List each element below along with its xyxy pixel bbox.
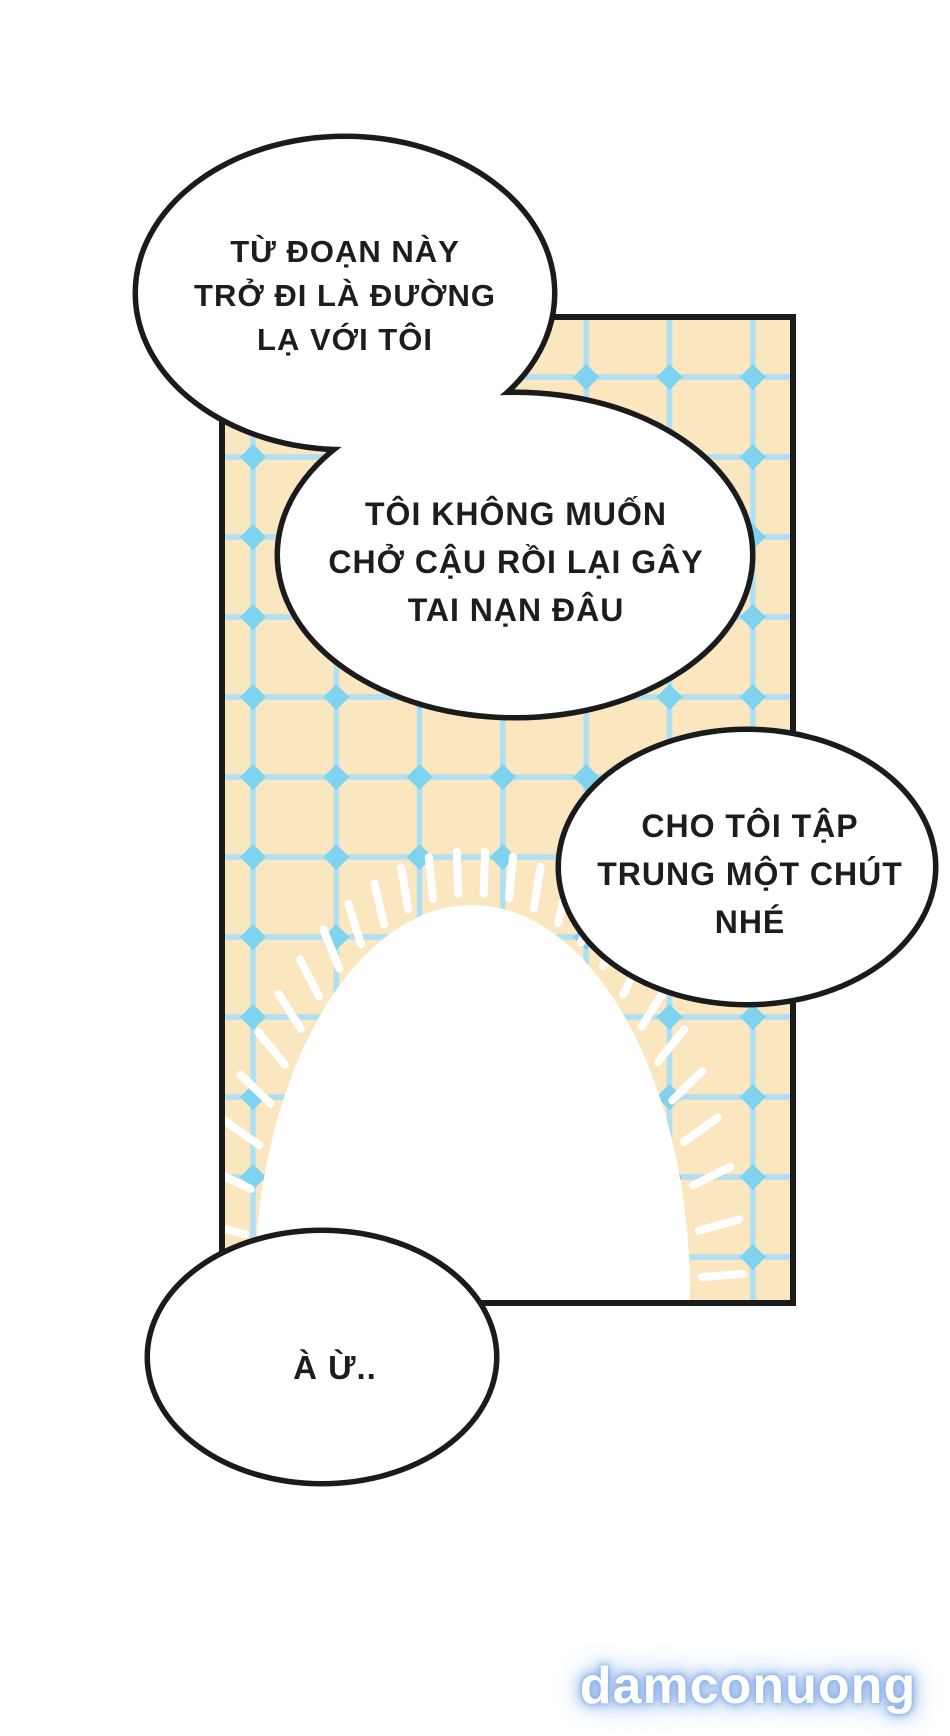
glow-ray: [509, 857, 513, 899]
speech-bubble-4-text: À Ừ..: [293, 1345, 377, 1391]
glow-ray: [457, 852, 459, 894]
speech-bubble-3-text: CHO TÔI TẬP TRUNG MỘT CHÚT NHÉ: [597, 802, 903, 946]
speech-bubble-2-text: TÔI KHÔNG MUỐN CHỞ CẬU RỒI LẠI GÂY TAI N…: [328, 490, 703, 634]
dialog-line: NHÉ: [597, 898, 903, 946]
glow-ray: [702, 1274, 744, 1277]
watermark: damconuong: [580, 1656, 916, 1716]
dialog-line: LẠ VỚI TÔI: [194, 318, 496, 362]
dialog-line: TRỞ ĐI LÀ ĐƯỜNG: [194, 274, 496, 318]
dialog-line: À Ừ..: [293, 1345, 377, 1391]
dialog-line: TRUNG MỘT CHÚT: [597, 850, 903, 898]
dialog-line: CHO TÔI TẬP: [597, 802, 903, 850]
dialog-line: TỪ ĐOẠN NÀY: [194, 230, 496, 274]
glow-ray: [484, 852, 485, 894]
dialog-line: TÔI KHÔNG MUỐN: [328, 490, 703, 538]
glow-ray: [429, 857, 433, 899]
dialog-line: TAI NẠN ĐÂU: [328, 586, 703, 634]
speech-bubble-1-text: TỪ ĐOẠN NÀY TRỞ ĐI LÀ ĐƯỜNG LẠ VỚI TÔI: [194, 230, 496, 362]
dialog-line: CHỞ CẬU RỒI LẠI GÂY: [328, 538, 703, 586]
comic-page: TỪ ĐOẠN NÀY TRỞ ĐI LÀ ĐƯỜNG LẠ VỚI TÔI T…: [0, 0, 950, 1736]
